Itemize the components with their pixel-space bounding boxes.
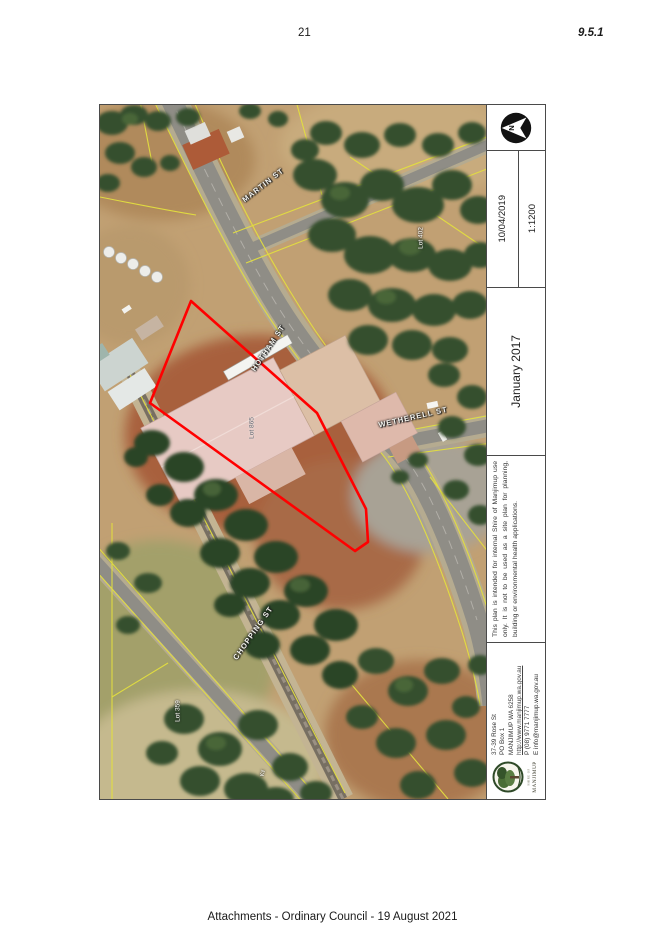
logo-tagline: SHIRE OF [527, 768, 531, 785]
logo-name: MANJIMUP [532, 761, 538, 792]
disclaimer-text: This plan is intended for internal Shire… [491, 461, 522, 637]
lot-label-865: Lot 865 [249, 417, 256, 439]
shire-of-manjimup-logo: SHIRE OF MANJIMUP [491, 759, 541, 795]
date-scale-box: 10/04/2019 1:1200 [487, 151, 545, 288]
address-line-3: MANJIMUP WA 6258 [508, 666, 516, 755]
plan-date-cell: 10/04/2019 [487, 151, 519, 287]
scale-cell: 1:1200 [519, 151, 545, 287]
north-letter: N [507, 125, 516, 130]
page-number: 21 [298, 27, 311, 39]
section-reference: 9.5.1 [578, 27, 604, 39]
website-link[interactable]: http://www.manjimup.wa.gov.au [516, 666, 523, 755]
address-line-1: 37-39 Rose St [491, 666, 499, 755]
imagery-date-box: January 2017 [487, 288, 545, 456]
lot-label-402: Lot 402 [418, 227, 425, 249]
document-page: { "page": { "page_number": "21", "sectio… [0, 0, 665, 941]
contact-details: 37-39 Rose St PO Box 1 MANJIMUP WA 6258 … [491, 666, 541, 755]
email-line: E info@manjimup.wa.gov.au [533, 666, 541, 755]
contact-box: SHIRE OF MANJIMUP 37-39 Rose St PO Box 1… [487, 643, 545, 799]
plan-print-date: 10/04/2019 [497, 195, 508, 243]
address-line-2: PO Box 1 [499, 666, 507, 755]
imagery-date: January 2017 [509, 335, 523, 408]
attachment-footer: Attachments - Ordinary Council - 19 Augu… [0, 911, 665, 923]
north-arrow-icon: N [497, 109, 535, 147]
map-scale: 1:1200 [527, 204, 538, 233]
disclaimer-box: This plan is intended for internal Shire… [487, 456, 545, 643]
phone-line: P (08) 9771 7777 [524, 666, 532, 755]
aerial-photo: MARTIN ST HOTHAM ST WETHERELL ST CHOPPIN… [100, 105, 486, 799]
lot-label-359: Lot 359 [175, 700, 182, 722]
north-arrow-box: N [487, 105, 545, 151]
title-block: N 10/04/2019 1:1200 January 2017 This pl… [486, 105, 545, 799]
lot-label-small: Ky [260, 770, 266, 776]
site-plan-figure: MARTIN ST HOTHAM ST WETHERELL ST CHOPPIN… [99, 104, 546, 800]
aerial-photo-graphic [100, 105, 486, 799]
